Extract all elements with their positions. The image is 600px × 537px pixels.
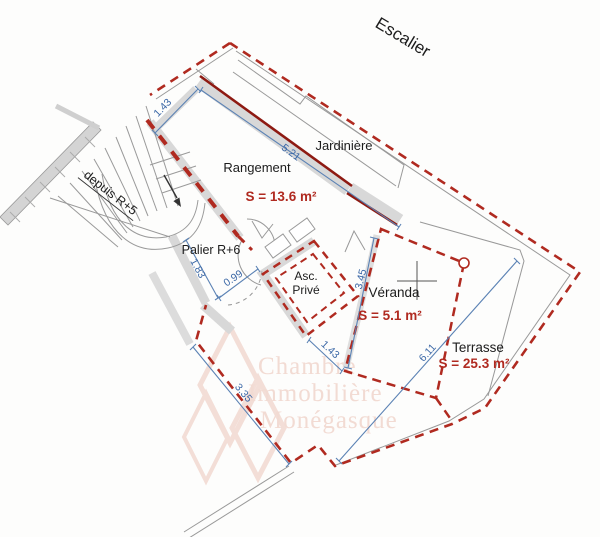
jardiniere-label: Jardinière [315, 138, 372, 153]
watermark-line1: Chambre [258, 353, 357, 380]
terrasse-area: S = 25.3 m² [439, 356, 510, 371]
floor-plan-page: Chambre Immobilière Monégasque [0, 0, 600, 537]
veranda-area: S = 5.1 m² [358, 308, 422, 323]
watermark-text: Chambre Immobilière Monégasque [248, 353, 398, 434]
parapet-ext-1 [184, 466, 289, 532]
watermark-diamond [184, 393, 228, 481]
veranda-label: Véranda [368, 285, 420, 300]
asc-label-line2: Privé [292, 283, 320, 297]
exterior-corner-wall [152, 273, 190, 344]
rangement-area: S = 13.6 m² [246, 189, 317, 204]
boundary-top-left [150, 43, 230, 95]
watermark-line3: Monégasque [260, 407, 398, 434]
staircase [58, 106, 205, 249]
palier-label: Palier R+6 [182, 243, 241, 257]
door-arc-rangement [247, 219, 275, 246]
asc-label-line1: Asc. [294, 269, 317, 283]
veranda-north-wall [350, 188, 400, 220]
terrasse-label: Terrasse [452, 340, 504, 355]
watermark-line2: Immobilière [248, 380, 383, 407]
escalier-label: Escalier [372, 14, 434, 62]
veranda-terrasse-link [436, 398, 452, 421]
dim-label-terrasse-diagonal: 6.11 [417, 342, 439, 365]
floor-plan-drawing: Chambre Immobilière Monégasque [0, 0, 600, 537]
stairwell-outer-wall-upper [56, 106, 99, 128]
rangement-label: Rangement [223, 160, 291, 175]
boundary-corner-marker [459, 258, 469, 268]
dim-label-palier-opening: 0.99 [221, 268, 245, 289]
palier-south-wall [203, 305, 232, 331]
walls [0, 82, 400, 368]
door-leaf-veranda [345, 231, 365, 252]
